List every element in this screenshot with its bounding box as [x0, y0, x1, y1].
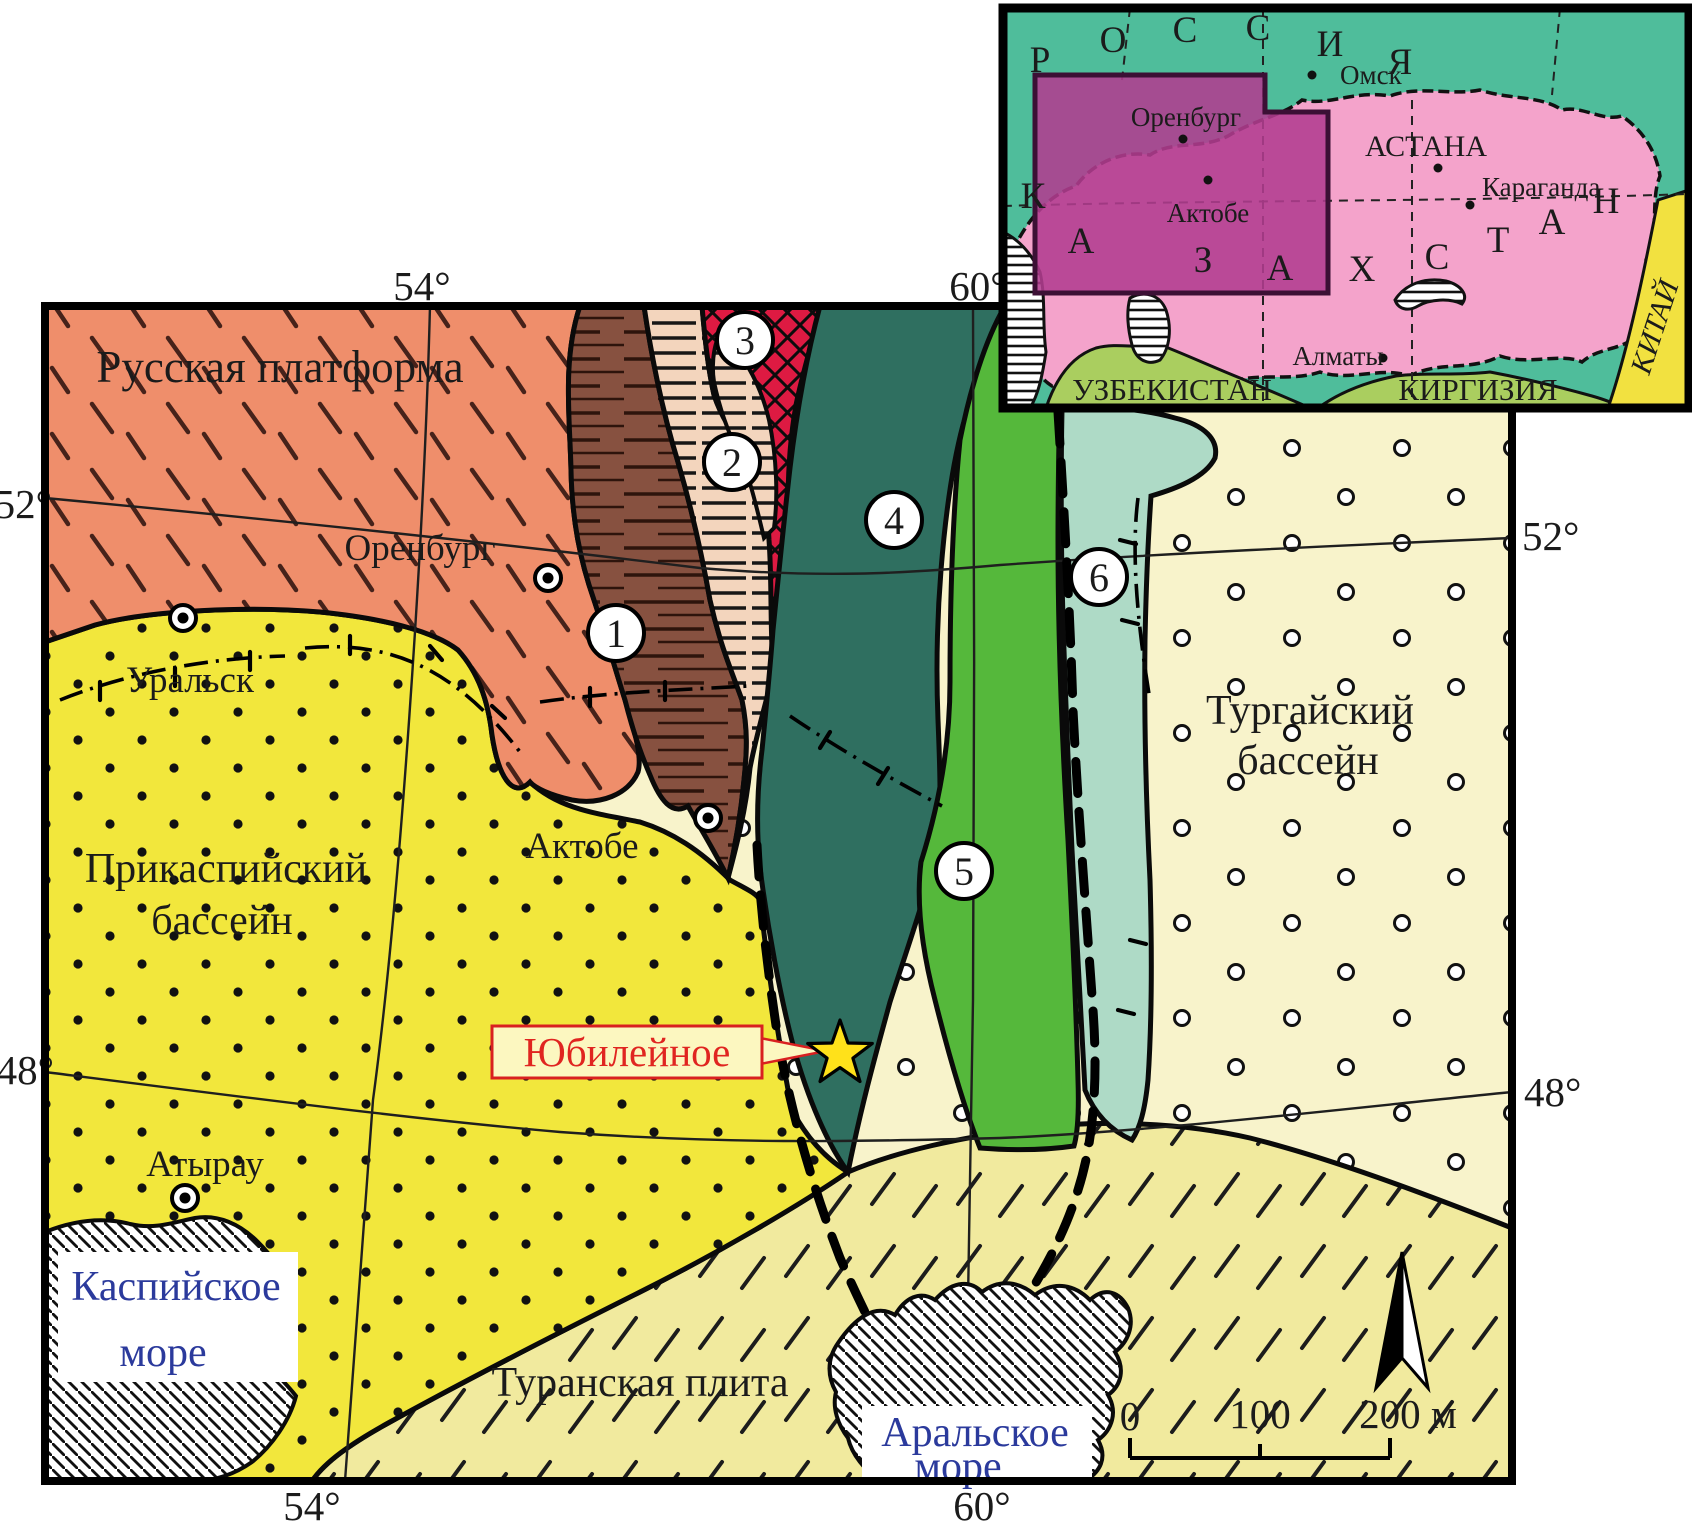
caspian-label-line2: море: [119, 1330, 206, 1376]
coord-right-48: 48°: [1524, 1069, 1581, 1115]
kazakhstan-letter: Т: [1487, 220, 1510, 261]
turgai-label-line1: Тургайский: [1206, 688, 1414, 734]
coord-bottom-54: 54°: [283, 1483, 340, 1529]
scale-100: 100: [1229, 1391, 1291, 1437]
astana-label: АСТАНА: [1365, 130, 1487, 163]
karaganda-dot: [1466, 201, 1475, 210]
omsk-label: Омск: [1340, 60, 1403, 90]
unit-marker-2: 2: [704, 434, 760, 490]
kazakhstan-letter: А: [1539, 202, 1566, 243]
precaspian-label-line2: бассейн: [151, 898, 292, 944]
rossiya-letter: С: [1173, 10, 1198, 51]
rossiya-letter: О: [1100, 20, 1127, 61]
kazakhstan-letter: Х: [1349, 249, 1376, 290]
russian-platform-label: Русская платформа: [96, 342, 463, 392]
orenburg-label: Оренбург: [344, 528, 495, 569]
inset-aktobe-dot: [1204, 176, 1213, 185]
unit-marker-5: 5: [936, 843, 992, 899]
kazakhstan-letter: А: [1267, 248, 1294, 289]
unit-number-5: 5: [954, 849, 974, 894]
almaty-label: Алматы: [1292, 341, 1383, 371]
uzbekistan-label: УЗБЕКИСТАН: [1072, 372, 1272, 407]
unit-number-3: 3: [735, 318, 755, 363]
astana-dot: [1434, 164, 1443, 173]
unit-number-1: 1: [606, 611, 626, 656]
unit-marker-4: 4: [866, 492, 922, 548]
omsk-dot: [1308, 71, 1317, 80]
geological-map-figure: Русская платформа Прикаспийский бассейн …: [0, 0, 1692, 1533]
city-marker-aktobe: [695, 805, 721, 831]
deposit-label: Юбилейное: [524, 1029, 731, 1075]
rossiya-letter: Р: [1030, 40, 1051, 81]
city-marker-atyrau: [172, 1185, 198, 1211]
aktobe-label: Актобе: [525, 826, 638, 867]
inset-aktobe-label: Актобе: [1167, 198, 1250, 228]
unit-number-4: 4: [884, 498, 904, 543]
rossiya-letter: С: [1246, 8, 1271, 49]
turgai-label-line2: бассейн: [1237, 738, 1378, 784]
kyrgyzstan-label: КИРГИЗИЯ: [1398, 372, 1557, 407]
kazakhstan-letter: З: [1194, 240, 1213, 281]
unit-number-6: 6: [1089, 555, 1109, 600]
caspian-label-line1: Каспийское: [71, 1264, 280, 1310]
atyrau-label: Атырау: [146, 1144, 264, 1185]
inset-orenburg-label: Оренбург: [1131, 102, 1241, 132]
turan-label: Туранская плита: [492, 1360, 789, 1406]
unit-marker-6: 6: [1071, 549, 1127, 605]
inset-map: Р О С С И Я К А З А Х С Т А Н Омск АСТАН: [1003, 8, 1689, 408]
rossiya-letter: И: [1317, 24, 1344, 65]
precaspian-label-line1: Прикаспийский: [85, 846, 367, 892]
inset-aral-shape: [1128, 294, 1170, 362]
uralsk-label: Уральск: [126, 660, 255, 701]
kazakhstan-letter: С: [1425, 237, 1450, 278]
kazakhstan-letter: К: [1021, 176, 1046, 217]
karaganda-label: Караганда: [1482, 172, 1600, 202]
unit-marker-3: 3: [717, 312, 773, 368]
coord-right-52: 52°: [1522, 513, 1579, 559]
unit-number-2: 2: [722, 440, 742, 485]
scale-0: 0: [1120, 1393, 1141, 1439]
city-marker-uralsk: [170, 605, 196, 631]
kazakhstan-letter: А: [1068, 221, 1095, 262]
scale-200: 200 м: [1359, 1391, 1457, 1437]
unit-marker-1: 1: [588, 605, 644, 661]
inset-orenburg-dot: [1179, 135, 1188, 144]
city-marker-orenburg: [535, 565, 561, 591]
coord-bottom-60: 60°: [953, 1483, 1010, 1529]
